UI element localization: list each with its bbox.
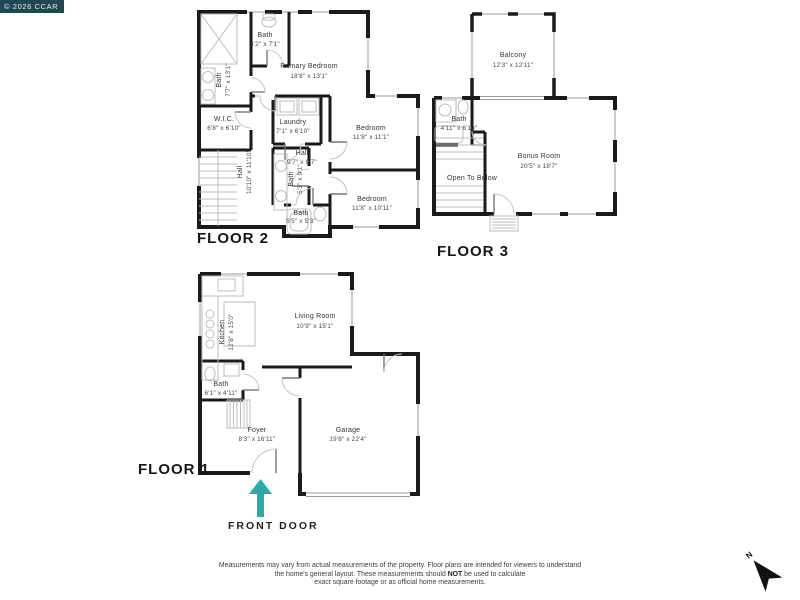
room-label-hall-left: Hall — [237, 165, 244, 178]
room-dims-bedroom2: 11'8" x 10'11" — [352, 205, 392, 212]
room-label-kitchen: Kitchen — [219, 320, 226, 345]
room-dims-bath-f3: 4'11" x 6'10" — [441, 125, 478, 132]
floor2-plan: Bath 4'2" x 7'1" Bath 7'7" x 13'1" Prima… — [185, 8, 425, 242]
front-door-arrow-icon — [247, 479, 274, 517]
room-dims-laundry: 7'1" x 6'10" — [276, 128, 309, 135]
disclaimer-line2: the home's general layout. These measure… — [0, 571, 800, 580]
room-label-bonus-room: Bonus Room — [518, 153, 560, 160]
room-label-bath-left: Bath — [216, 72, 223, 87]
room-dims-bath-left: 7'7" x 13'1" — [225, 63, 232, 96]
floor3-label: FLOOR 3 — [437, 243, 509, 260]
floor1-label: FLOOR 1 — [138, 461, 210, 478]
floorplan-page: { "copyright": "© 2026 CCAR", "front_doo… — [0, 0, 800, 600]
room-label-wic: W.I.C. — [214, 116, 234, 123]
room-dims-bath-mid: 5'3" x 9'1" — [297, 164, 304, 194]
room-label-open-to-below: Open To Below — [447, 175, 498, 182]
room-dims-bath-f1: 6'1" x 4'11" — [205, 390, 238, 397]
room-label-living-room: Living Room — [294, 313, 335, 320]
room-label-primary-bedroom: Primary Bedroom — [280, 63, 337, 70]
room-dims-garage: 19'8" x 22'4" — [329, 436, 366, 443]
room-label-balcony: Balcony — [500, 52, 527, 59]
floor1-plan: Kitchen 12'8" x 15'0" Living Room 10'9" … — [188, 266, 434, 506]
disclaimer-not-emphasis: NOT — [448, 571, 463, 578]
room-label-bath-f1: Bath — [213, 381, 228, 388]
room-dims-bedroom1: 11'8" x 11'1" — [353, 134, 389, 141]
room-label-bedroom1: Bedroom — [356, 125, 386, 132]
room-dims-bath-bottom: 5'5" x 5'3" — [286, 218, 316, 225]
disclaimer-text: Measurements may vary from actual measur… — [0, 562, 800, 588]
room-label-laundry: Laundry — [280, 119, 307, 126]
north-arrow-label: N — [744, 550, 754, 561]
room-dims-primary-bedroom: 18'8" x 13'1" — [290, 73, 327, 80]
room-dims-kitchen: 12'8" x 15'0" — [228, 313, 235, 350]
room-dims-living-room: 10'9" x 15'1" — [296, 323, 333, 330]
floor2-label: FLOOR 2 — [197, 230, 269, 247]
floor3-plan: Balcony 12'3" x 12'11" Bath 4'11" x 6'10… — [432, 10, 620, 236]
room-label-bedroom2: Bedroom — [357, 196, 387, 203]
room-dims-bath-top: 4'2" x 7'1" — [250, 41, 280, 48]
copyright-chip: © 2026 CCAR — [0, 0, 64, 13]
front-door-label: FRONT DOOR — [228, 520, 319, 532]
room-label-bath-bottom: Bath — [293, 210, 308, 217]
room-label-bath-top: Bath — [257, 32, 272, 39]
room-label-bath-f3: Bath — [451, 116, 466, 123]
floor1-exterior-wall — [200, 274, 418, 494]
room-label-foyer: Foyer — [248, 427, 267, 434]
room-dims-foyer: 8'3" x 16'11" — [239, 436, 276, 443]
disclaimer-line1: Measurements may vary from actual measur… — [0, 562, 800, 571]
room-label-hall: Hall — [296, 150, 309, 157]
room-dims-hall-left: 10'10" x 11'10" — [246, 150, 253, 194]
room-dims-balcony: 12'3" x 12'11" — [493, 62, 533, 69]
room-label-bath-mid: Bath — [288, 171, 295, 186]
disclaimer-line3: exact square footage or as official home… — [0, 579, 800, 588]
room-label-garage: Garage — [336, 427, 361, 434]
room-dims-bonus-room: 20'5" x 18'7" — [520, 163, 557, 170]
room-dims-wic: 6'8" x 6'10" — [207, 125, 240, 132]
